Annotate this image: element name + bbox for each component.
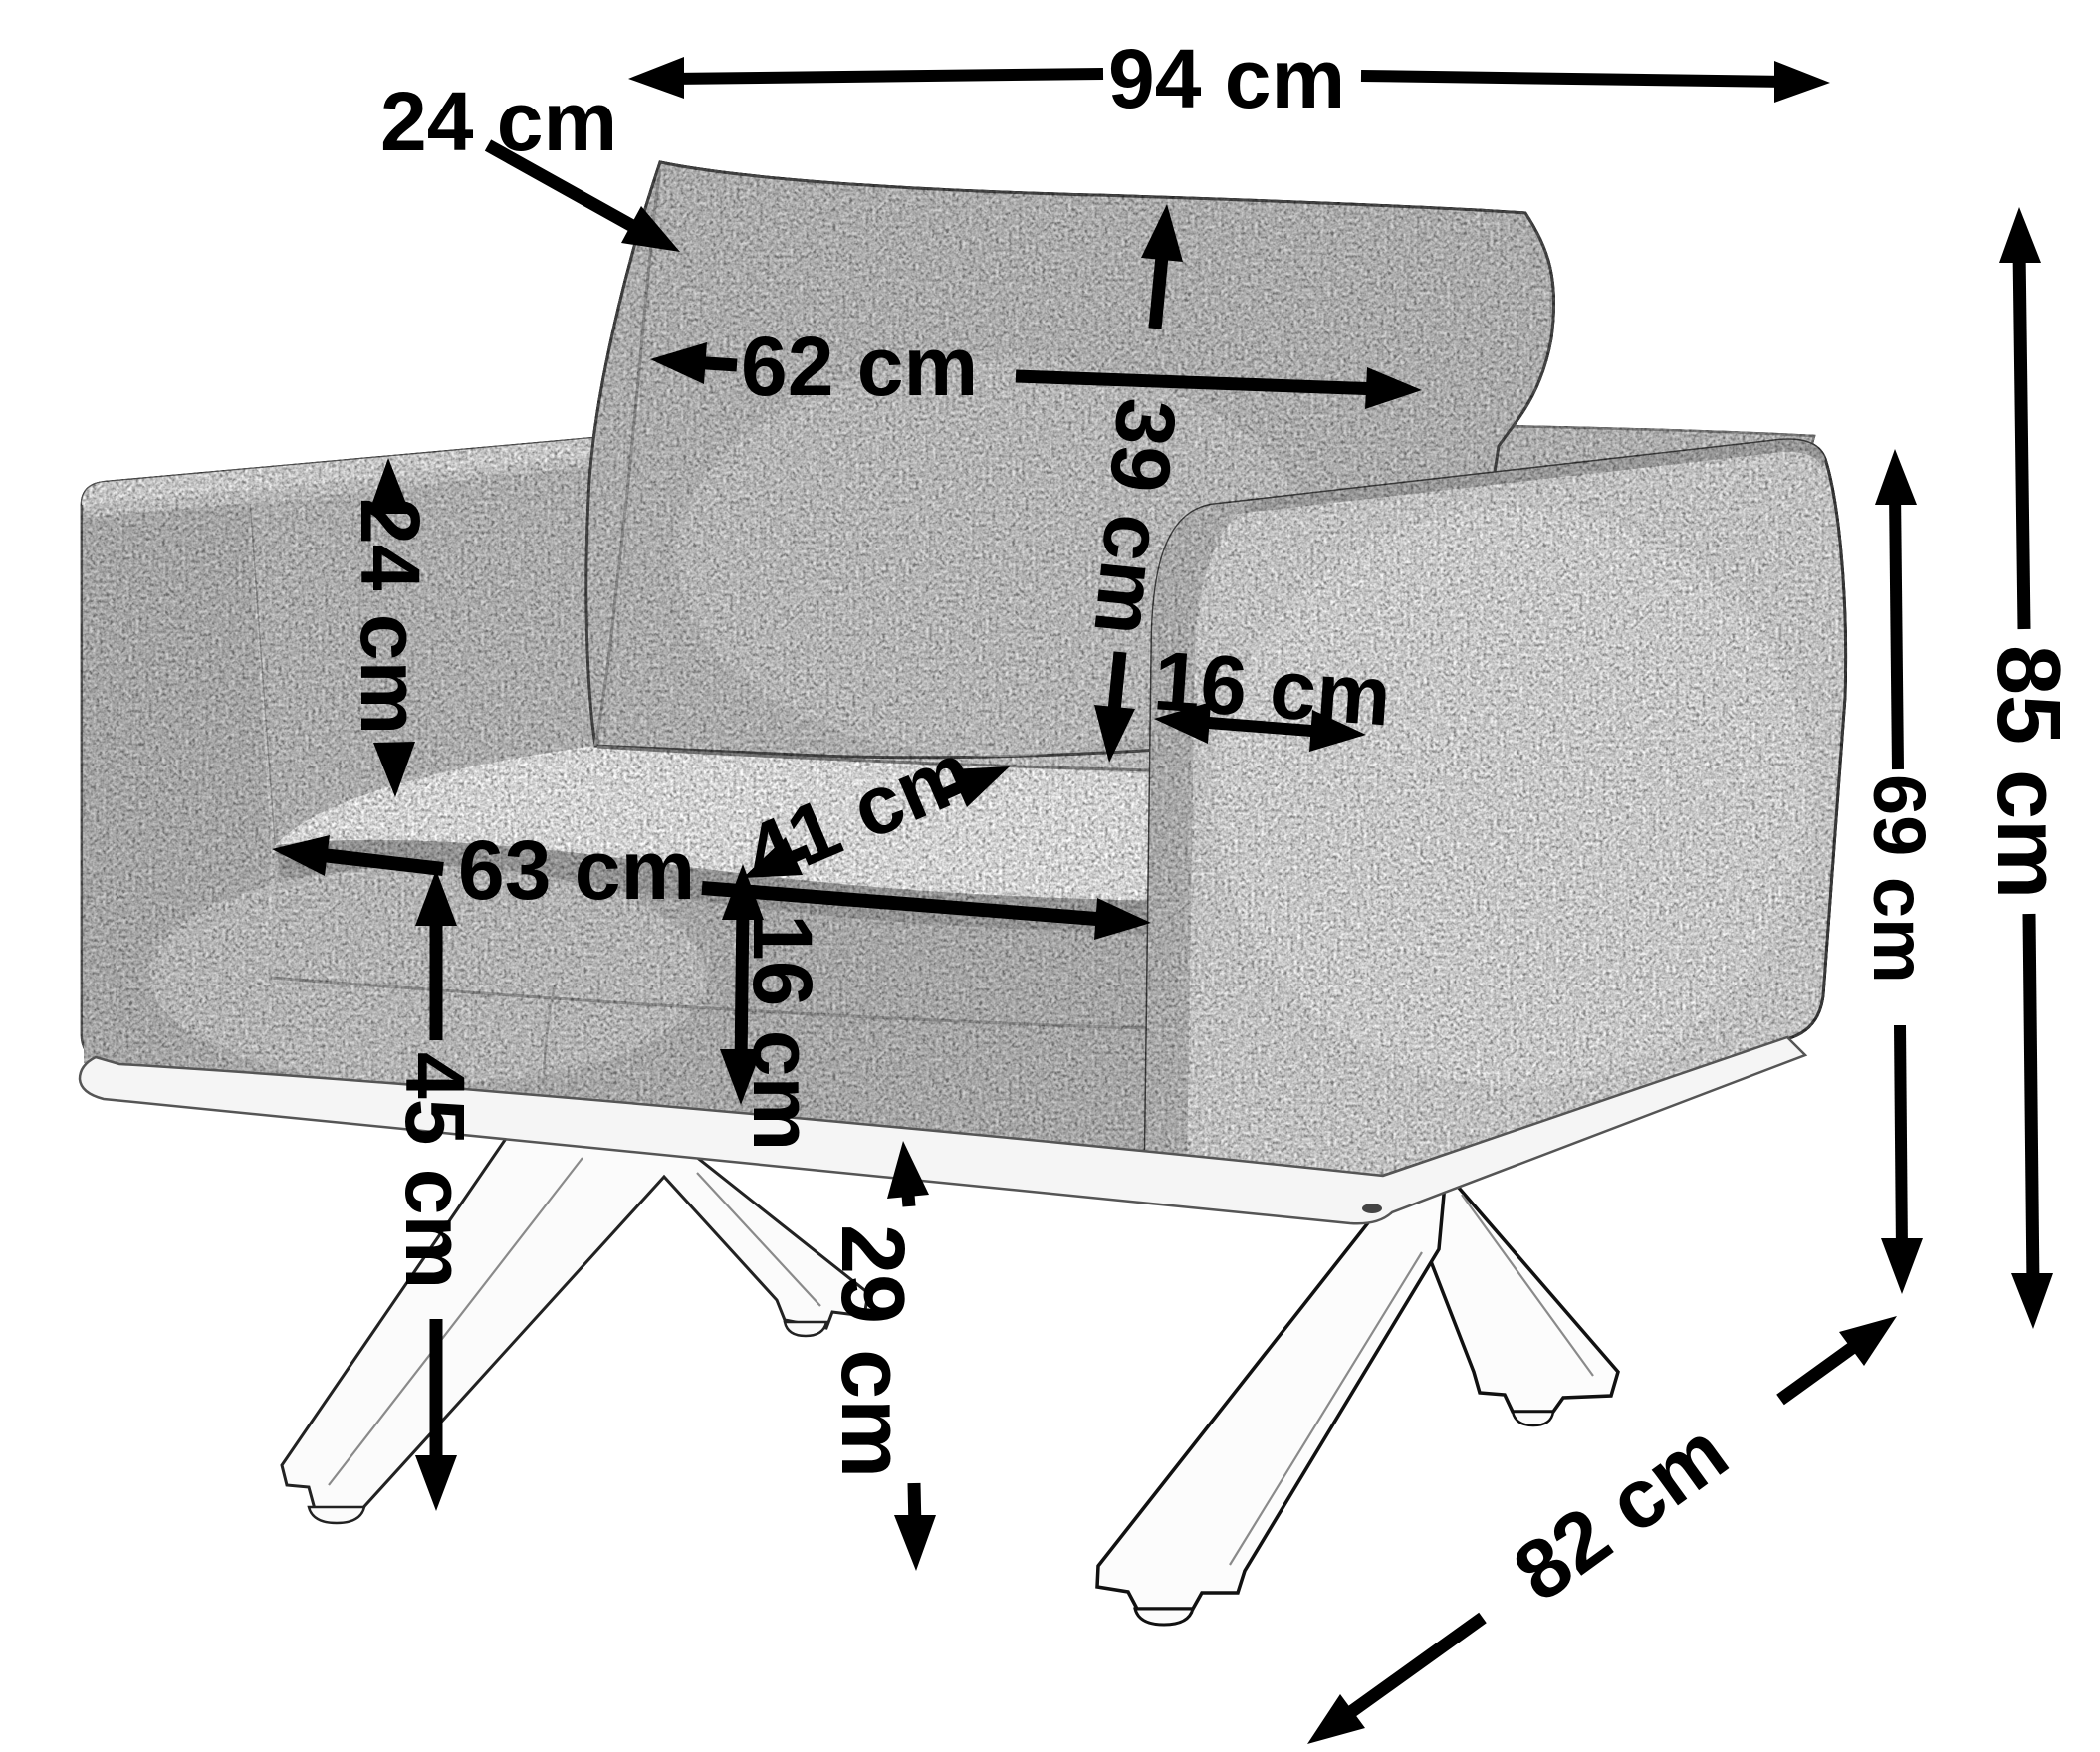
svg-text:63 cm: 63 cm (458, 823, 695, 917)
svg-text:45 cm: 45 cm (388, 1052, 482, 1289)
svg-text:29 cm: 29 cm (822, 1224, 922, 1478)
svg-text:16 cm: 16 cm (1151, 633, 1394, 743)
svg-text:62 cm: 62 cm (741, 320, 978, 413)
svg-text:85 cm: 85 cm (1979, 645, 2078, 899)
svg-text:69 cm: 69 cm (1858, 774, 1941, 984)
svg-text:24 cm: 24 cm (344, 498, 437, 735)
svg-text:24 cm: 24 cm (380, 75, 617, 168)
svg-text:16 cm: 16 cm (736, 914, 829, 1151)
svg-text:94 cm: 94 cm (1108, 32, 1345, 125)
